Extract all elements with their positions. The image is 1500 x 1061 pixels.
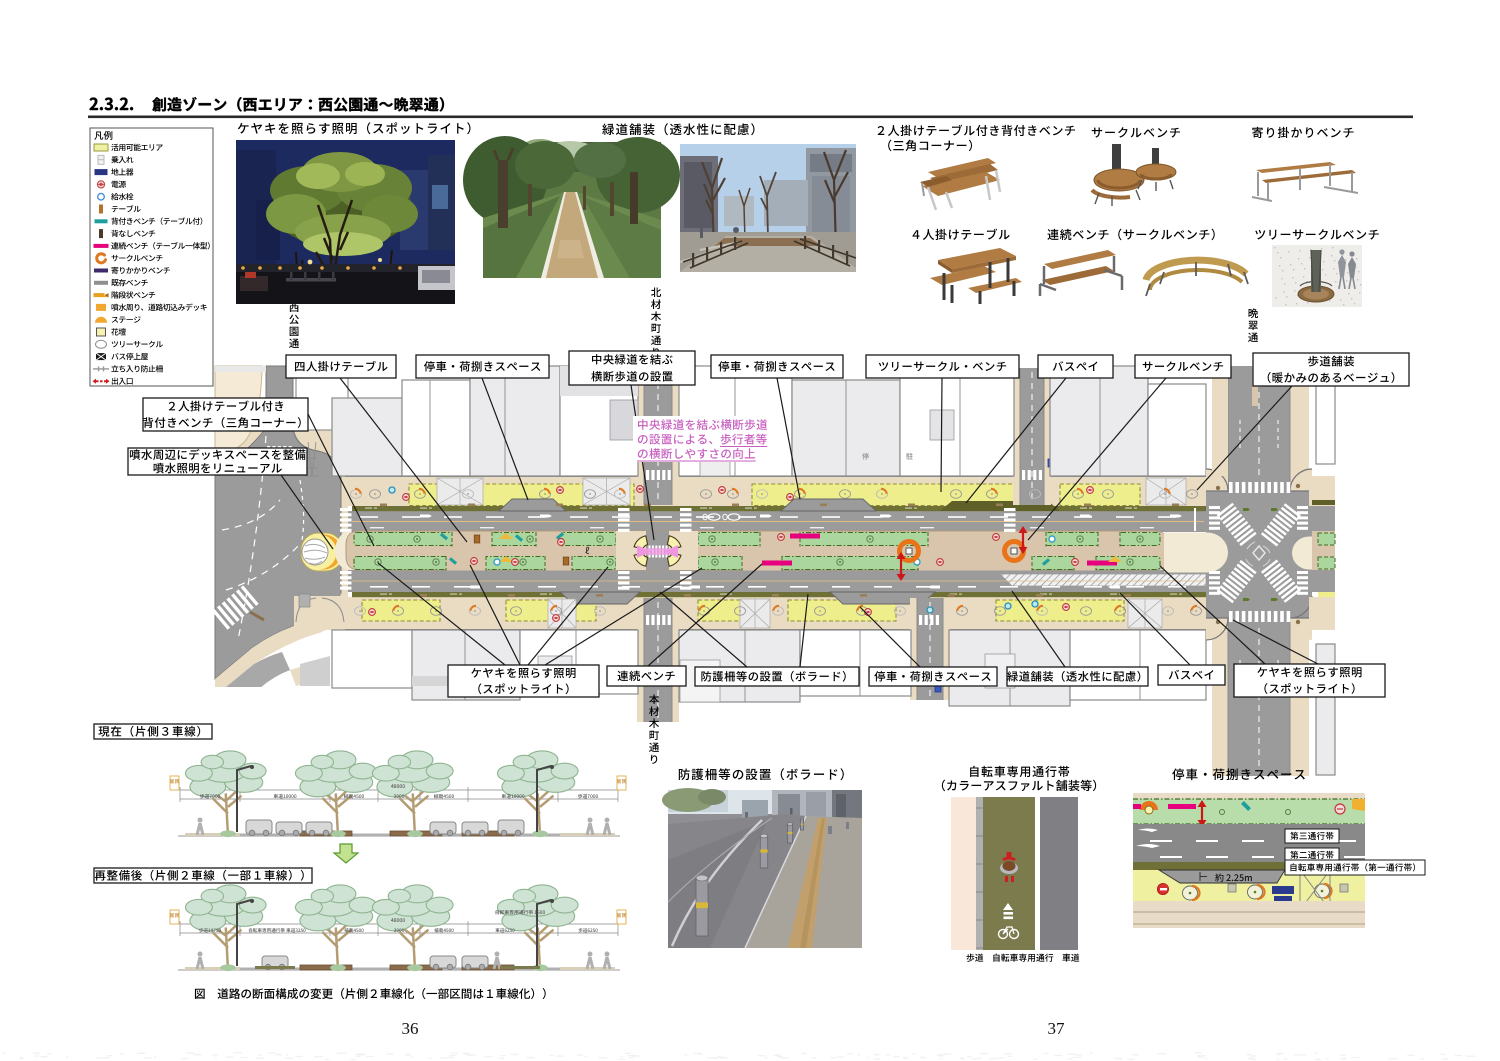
svg-text:36: 36 [402, 1019, 419, 1038]
svg-text:37: 37 [1048, 1019, 1066, 1038]
